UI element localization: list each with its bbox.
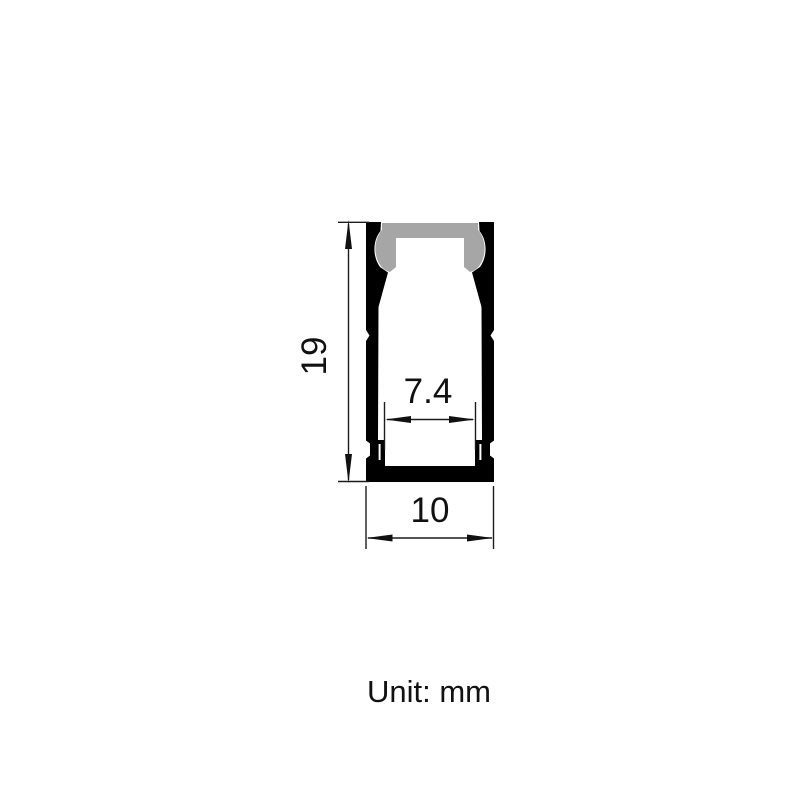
unit-label: Unit: mm <box>367 674 491 709</box>
drawing-canvas: 19 7.4 10 Unit: mm <box>0 0 800 800</box>
arrowhead-right-icon <box>467 535 493 542</box>
arrowhead-down-icon <box>345 454 352 483</box>
dimension-inner-width: 7.4 <box>385 372 476 450</box>
dimension-outer-width: 10 <box>366 486 494 549</box>
dimension-height: 19 <box>295 220 369 483</box>
arrowhead-left-icon <box>367 535 393 542</box>
dim-outer-width-label: 10 <box>411 491 450 530</box>
arrowhead-left-icon <box>385 416 411 423</box>
arrowhead-up-icon <box>345 220 352 249</box>
tab-relief-right <box>479 444 481 460</box>
diffuser-cover <box>375 223 484 272</box>
dim-height-label: 19 <box>295 337 334 376</box>
profile-technical-drawing: 19 7.4 10 Unit: mm <box>0 0 800 800</box>
arrowhead-right-icon <box>449 416 475 423</box>
dim-inner-width-label: 7.4 <box>404 372 453 411</box>
tab-relief-left <box>379 444 381 460</box>
